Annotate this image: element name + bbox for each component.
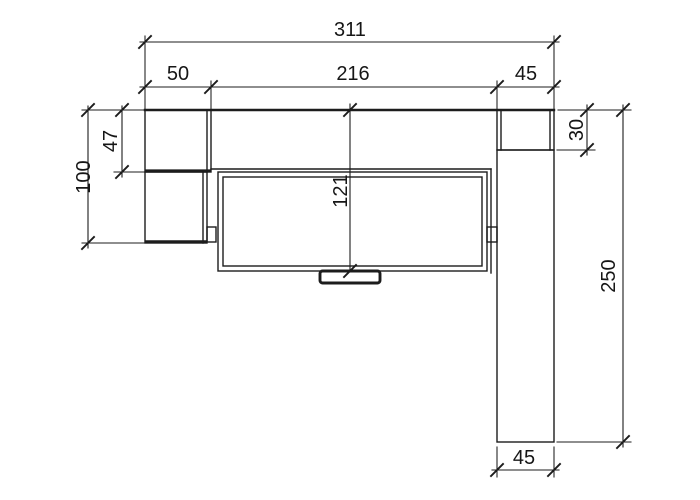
drawer-front-inner (223, 177, 482, 266)
technical-drawing-canvas: 311 50 216 45 47 100 121 30 (0, 0, 700, 500)
dim-label-right-section-width: 45 (515, 63, 537, 85)
dim-right-top-panel-height: 30 (566, 104, 593, 156)
dim-label-left-assembly-height: 100 (73, 160, 95, 193)
drawing-svg: 311 50 216 45 47 100 121 30 (0, 0, 700, 500)
dim-label-front-height: 121 (330, 174, 352, 207)
dim-total-height: 250 (598, 104, 629, 448)
dim-label-total-height: 250 (598, 259, 620, 292)
dim-label-right-top-panel-height: 30 (566, 119, 588, 141)
extension-lines (82, 36, 631, 477)
drawer-handle (320, 271, 380, 283)
dim-label-center-section-width: 216 (336, 63, 369, 85)
left-mounting-bracket (207, 227, 216, 242)
left-upper-cabinet (145, 110, 211, 172)
dim-label-right-panel-bottom-width: 45 (513, 447, 535, 469)
dim-left-assembly-height: 100 (73, 104, 95, 249)
dim-upper-panel-height: 47 (100, 104, 128, 178)
right-mounting-bracket (487, 227, 497, 242)
dim-label-left-section-width: 50 (167, 63, 189, 85)
drawer-front-outer (218, 172, 487, 271)
dim-front-height: 121 (330, 104, 356, 277)
dim-label-upper-panel-height: 47 (100, 130, 122, 152)
dim-right-panel-bottom-width: 45 (491, 447, 560, 476)
right-top-panel (497, 110, 554, 150)
right-side-panel (497, 150, 554, 442)
dim-total-width: 311 (139, 19, 560, 48)
dim-label-total-width: 311 (334, 19, 366, 41)
left-lower-cabinet (145, 172, 207, 243)
